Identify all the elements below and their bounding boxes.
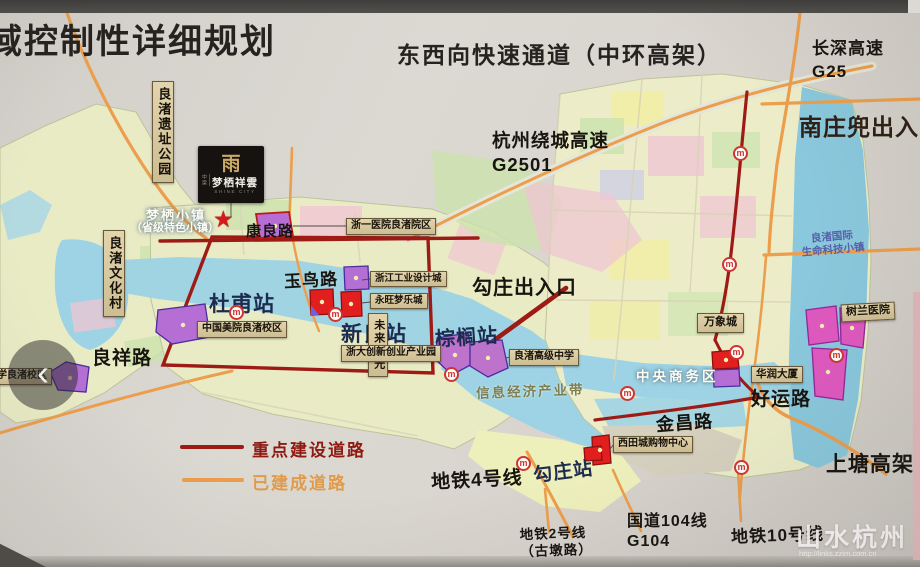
area-mengqi-town-sub: （省级特色小镇） xyxy=(131,219,219,235)
changshen-expressway-label: 长深高速 G25 xyxy=(812,38,884,84)
poi-shulan-hospital: 树兰医院 xyxy=(841,302,896,323)
guodao104-label: 国道104线 G104 xyxy=(627,512,708,552)
legend-built-road-label: 已建成道路 xyxy=(252,469,347,494)
logo-project-name: 梦栖祥雲 xyxy=(206,175,264,190)
area-cbd: 中央商务区 xyxy=(636,365,719,385)
poi-liangzhu-park: 良渚遗址公园 xyxy=(152,81,174,183)
liangxiang-road-label: 良祥路 xyxy=(92,343,152,370)
poi-meiyuan-campus: 中国美院良渚校区 xyxy=(197,321,287,338)
metro-icon: m xyxy=(444,367,459,382)
metro-icon-glyph: m xyxy=(232,308,240,317)
legend-built-road-swatch xyxy=(182,478,244,482)
poi-wenhua-village: 良渚文化村 xyxy=(103,230,125,317)
metro-icon-glyph: m xyxy=(832,351,840,360)
metro-line2-label: 地铁2号线 （古墩路） xyxy=(519,525,593,561)
changshen-code: G25 xyxy=(812,61,884,84)
poi-huarun-tower: 华润大厦 xyxy=(751,366,803,383)
land-layer xyxy=(0,74,871,512)
metro-icon-glyph: m xyxy=(732,348,740,357)
corridor-title: 东西向快速通道（中环高架） xyxy=(397,36,722,70)
metro-icon-glyph: m xyxy=(447,370,455,379)
chevron-left-icon: ‹ xyxy=(37,352,49,394)
nanzhuangdou-exit-label: 南庄兜出入口 xyxy=(799,108,920,142)
plan-title: 域控制性详细规划 xyxy=(0,14,276,63)
photo-right-edge xyxy=(913,292,920,560)
poi-wanxiang-city: 万象城 xyxy=(697,313,744,333)
photo-top-corner xyxy=(908,0,920,13)
planning-map-photo: 域控制性详细规划 东西向快速通道（中环高架） 长深高速 G25 南庄兜出入口 杭… xyxy=(0,0,920,567)
changshen-name: 长深高速 xyxy=(812,38,884,61)
yuniao-road-label: 玉鸟路 xyxy=(283,265,338,293)
raocheng-name: 杭州绕城高速 xyxy=(492,129,609,153)
project-star-marker: ★ xyxy=(213,206,234,233)
project-logo-billboard: 中梁 雨 梦栖祥雲 SHINE CITY xyxy=(198,146,264,203)
metro-icon-glyph: m xyxy=(737,463,745,472)
poi-zheda-park: 浙大创新创业产业园 xyxy=(341,345,441,362)
raocheng-expressway-label: 杭州绕城高速 G2501 xyxy=(492,129,609,177)
metro-line2-sub: （古墩路） xyxy=(520,542,593,561)
legend-key-road-swatch xyxy=(180,445,244,449)
metro-icon-glyph: m xyxy=(736,149,744,158)
guodao104-name: 国道104线 xyxy=(627,512,708,532)
metro-icon-glyph: m xyxy=(519,459,527,468)
raocheng-code: G2501 xyxy=(492,153,609,177)
metro-icon: m xyxy=(829,348,844,363)
metro-icon: m xyxy=(729,345,744,360)
metro-icon: m xyxy=(229,305,244,320)
poi-aeon-mall: 永旺梦乐城 xyxy=(370,293,428,309)
metro-icon-glyph: m xyxy=(331,310,339,319)
poi-gaoji-school: 良渚高级中学 xyxy=(509,349,579,366)
metro-icon: m xyxy=(516,456,531,471)
logo-subtitle: SHINE CITY xyxy=(206,189,264,194)
carousel-prev-button[interactable]: ‹ xyxy=(8,340,78,410)
rain-logo-glyph: 雨 xyxy=(198,149,264,176)
metro-line4-label: 地铁4号线 xyxy=(430,463,523,495)
metro-icon: m xyxy=(620,386,635,401)
gouzhuang-exit-label: 勾庄出入口 xyxy=(472,271,577,300)
jinchang-road-label: 金昌路 xyxy=(655,407,714,437)
metro-icon: m xyxy=(328,307,343,322)
guodao104-code: G104 xyxy=(627,532,708,552)
photo-top-edge xyxy=(0,0,908,13)
watermark-url: http://links.zzim.com.cn xyxy=(799,549,877,558)
shangtang-viaduct-label: 上塘高架 xyxy=(826,448,914,478)
poi-xitian-mall: 西田城购物中心 xyxy=(613,436,693,453)
metro-icon-glyph: m xyxy=(725,260,733,269)
haoyun-road-label: 好运路 xyxy=(751,384,811,411)
poi-design-city: 浙江工业设计城 xyxy=(370,271,447,287)
poi-zheyi-hospital: 浙一医院良渚院区 xyxy=(346,218,436,235)
metro-icon: m xyxy=(722,257,737,272)
kangliang-road-label: 康良路 xyxy=(246,220,294,241)
zonglv-station-label: 棕榈站 xyxy=(434,319,499,352)
area-info-belt: 信息经济产业带 xyxy=(476,378,585,402)
metro-icon: m xyxy=(734,460,749,475)
legend-key-road-label: 重点建设道路 xyxy=(252,436,366,461)
photo-bottom-edge xyxy=(0,556,920,567)
metro-icon: m xyxy=(733,146,748,161)
metro-icon-glyph: m xyxy=(623,389,631,398)
